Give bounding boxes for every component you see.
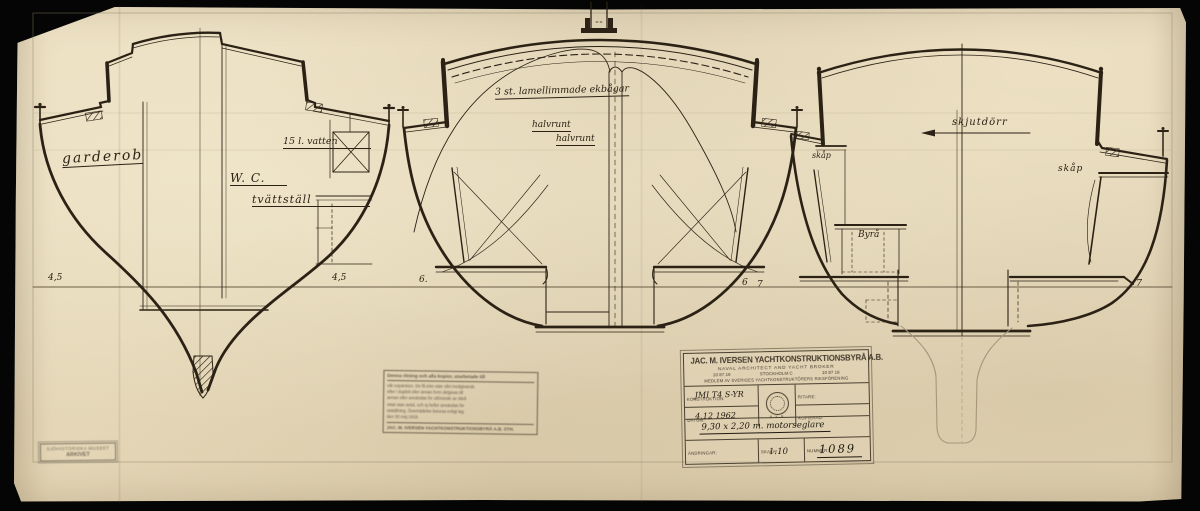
description-cell: 9,30 x 2,20 m. motorseglare — [685, 415, 869, 440]
waterline-number: 7 — [757, 281, 763, 290]
waterline-number: 4,5 — [48, 274, 62, 283]
disclaimer-footer: JAC. M. IVERSEN YACHTKONSTRUKTIONSBYRÅ A… — [387, 422, 534, 432]
archive-stamp-line1: SJÖHISTORISKA MUSEET — [42, 445, 114, 451]
waterline-number: 6 — [742, 279, 748, 288]
waterline-number: 7 — [1136, 279, 1142, 289]
city: STOCKHOLM C — [760, 371, 793, 377]
disclaimer-header: Denna ritning och alla kopior, utarbetad… — [387, 373, 534, 383]
disclaimer-stamp: Denna ritning och alla kopior, utarbetad… — [383, 370, 539, 435]
ritare-label: RITARE: — [798, 394, 816, 399]
ritare-cell: RITARE: — [796, 383, 869, 405]
phone-left: 10 87 19 — [713, 372, 731, 377]
skala-value: 1:10 — [769, 447, 788, 457]
disclaimer-body: vår expansion. De få icke utan vårt medg… — [387, 383, 535, 422]
label-vatten: 15 l. vatten — [283, 137, 371, 149]
seal-circle-icon — [765, 392, 788, 415]
title-block: JAC. M. IVERSEN YACHTKONSTRUKTIONSBYRÅ A… — [683, 349, 871, 465]
label-skap-left: skåp — [812, 152, 831, 160]
skala-cell: SKALA: 1:10 — [758, 438, 804, 462]
waterline-number: 6. — [419, 276, 428, 285]
scanned-yacht-drawing: garderob W. C. tvättställ 15 l. vatten 3… — [0, 0, 1200, 511]
archive-stamp: SJÖHISTORISKA MUSEET ARKIVET — [40, 442, 116, 461]
nummer-cell: NUMMER: 1089 — [804, 437, 870, 461]
hull-sections-linework — [0, 0, 1200, 511]
label-halvrunt-lower: halvrunt — [556, 135, 595, 146]
label-halvrunt-upper: halvrunt — [532, 121, 571, 132]
andringar-label: ÄNDRINGAR: — [688, 450, 717, 456]
archive-stamp-line2: ARKIVET — [42, 451, 114, 458]
label-tvattstall: tvättställ — [252, 194, 370, 207]
label-skap-right: skåp — [1058, 165, 1083, 174]
label-wc: W. C. — [230, 172, 287, 186]
nummer-value: 1089 — [817, 441, 863, 458]
label-byra: Byrå — [858, 231, 879, 240]
boat-description: 9,30 x 2,20 m. motorseglare — [699, 420, 830, 435]
waterline-number: 4,5 — [332, 274, 346, 283]
konstruktion-cell: KONSTRUKTION: JMI T4 S-YR — [685, 385, 758, 407]
andringar-cell: ÄNDRINGAR: — [686, 439, 758, 464]
disclaimer-line: den 30 maj 1919. — [387, 414, 534, 422]
phone-right: 10 87 19 — [822, 370, 840, 375]
label-skjutdorr: skjutdörr — [952, 118, 1008, 128]
konstruktion-value: JMI T4 S-YR — [695, 390, 744, 400]
section-forward — [35, 28, 394, 398]
